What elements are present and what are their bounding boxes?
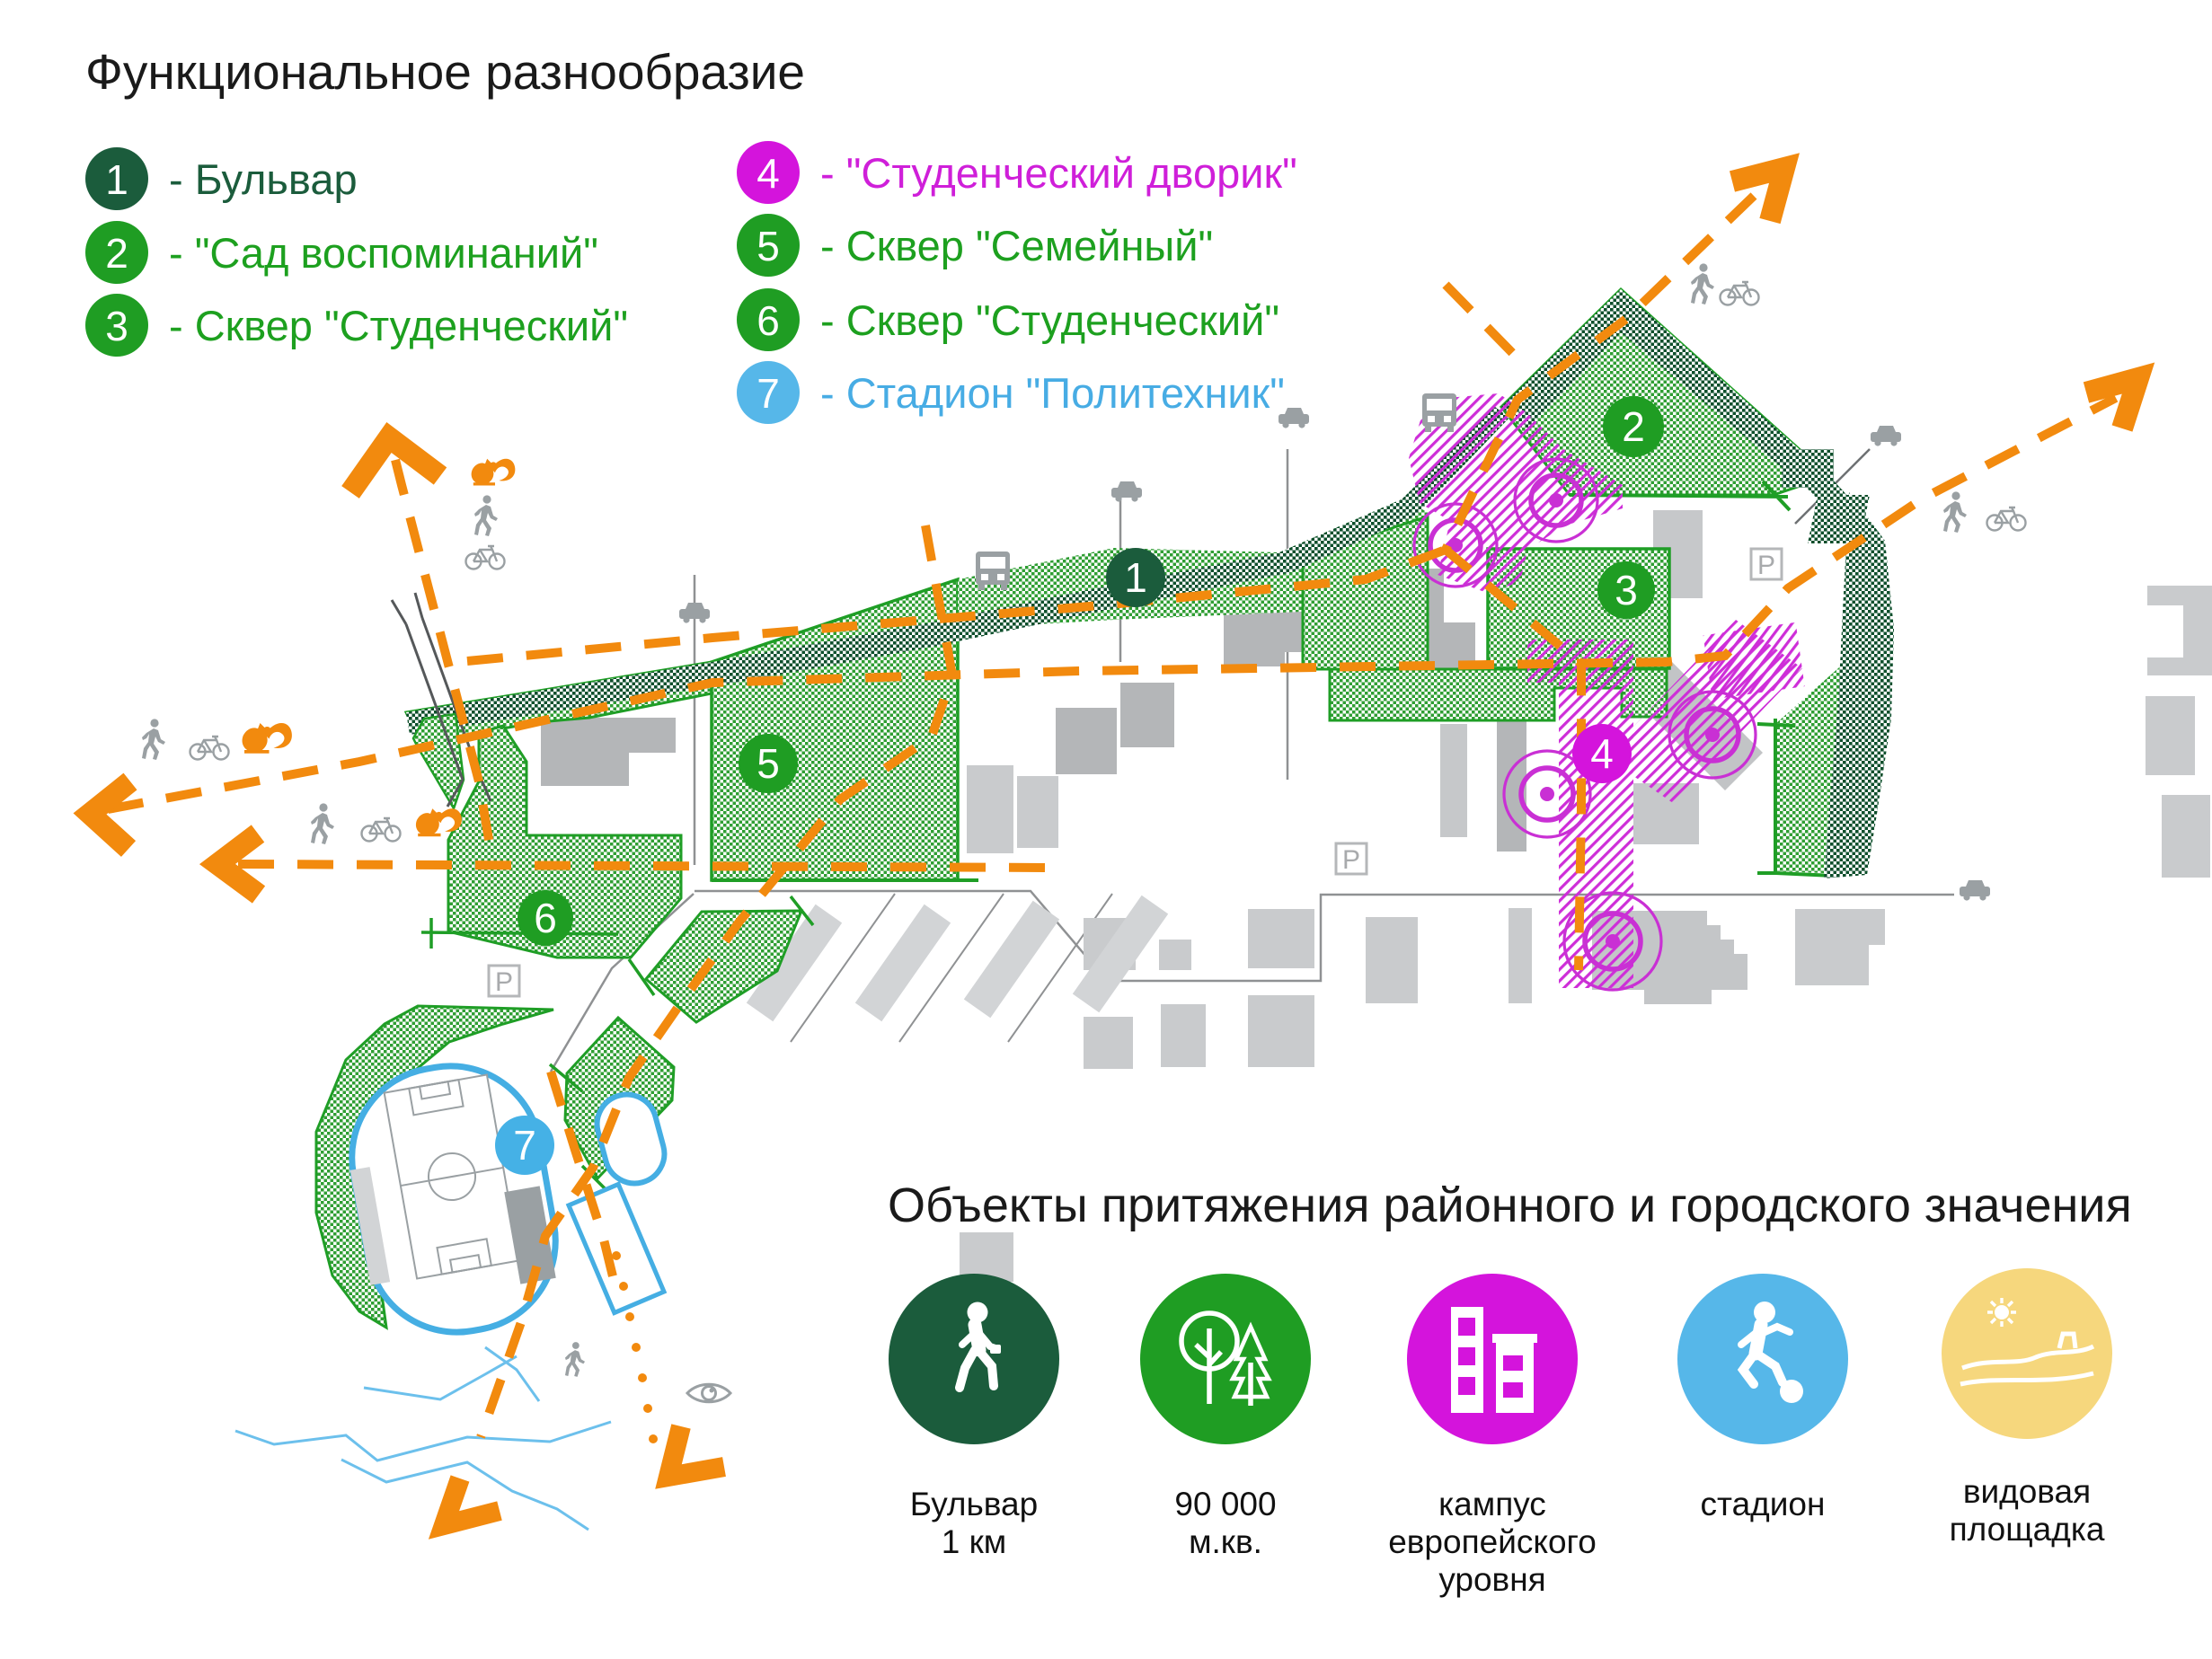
svg-text:7: 7 [757, 370, 780, 417]
svg-text:- "Студенческий дворик": - "Студенческий дворик" [820, 149, 1297, 197]
svg-text:90 000: 90 000 [1174, 1486, 1276, 1522]
svg-text:4: 4 [1590, 730, 1614, 777]
svg-text:5: 5 [757, 223, 780, 269]
svg-text:6: 6 [534, 895, 557, 941]
svg-text:- "Сад воспоминаний": - "Сад воспоминаний" [169, 229, 598, 277]
svg-text:- Сквер "Студенческий": - Сквер "Студенческий" [820, 296, 1279, 344]
svg-text:Бульвар: Бульвар [910, 1486, 1038, 1522]
svg-text:1: 1 [1124, 554, 1147, 601]
svg-text:- Бульвар: - Бульвар [169, 155, 358, 203]
svg-text:2: 2 [105, 230, 128, 277]
svg-text:5: 5 [757, 740, 780, 787]
svg-text:3: 3 [1615, 567, 1638, 613]
svg-text:м.кв.: м.кв. [1189, 1523, 1262, 1560]
svg-text:4: 4 [757, 150, 780, 197]
svg-text:- Сквер "Семейный": - Сквер "Семейный" [820, 222, 1213, 269]
svg-text:кампус: кампус [1438, 1486, 1546, 1522]
svg-text:видовая: видовая [1963, 1473, 2091, 1510]
svg-text:Объекты притяжения районного и: Объекты притяжения районного и городског… [888, 1178, 2132, 1232]
svg-text:2: 2 [1622, 403, 1645, 450]
svg-text:- Сквер "Студенческий": - Сквер "Студенческий" [169, 302, 628, 349]
svg-text:площадка: площадка [1950, 1511, 2105, 1548]
svg-text:1: 1 [105, 156, 128, 203]
svg-text:- Стадион "Политехник": - Стадион "Политехник" [820, 369, 1285, 417]
svg-text:европейского: европейского [1388, 1523, 1597, 1560]
svg-text:1 км: 1 км [942, 1523, 1006, 1560]
svg-text:уровня: уровня [1438, 1561, 1545, 1598]
svg-text:6: 6 [757, 297, 780, 344]
svg-text:3: 3 [105, 303, 128, 349]
svg-text:Функциональное разнообразие: Функциональное разнообразие [85, 44, 805, 100]
svg-text:стадион: стадион [1701, 1486, 1826, 1522]
svg-text:7: 7 [513, 1122, 536, 1169]
